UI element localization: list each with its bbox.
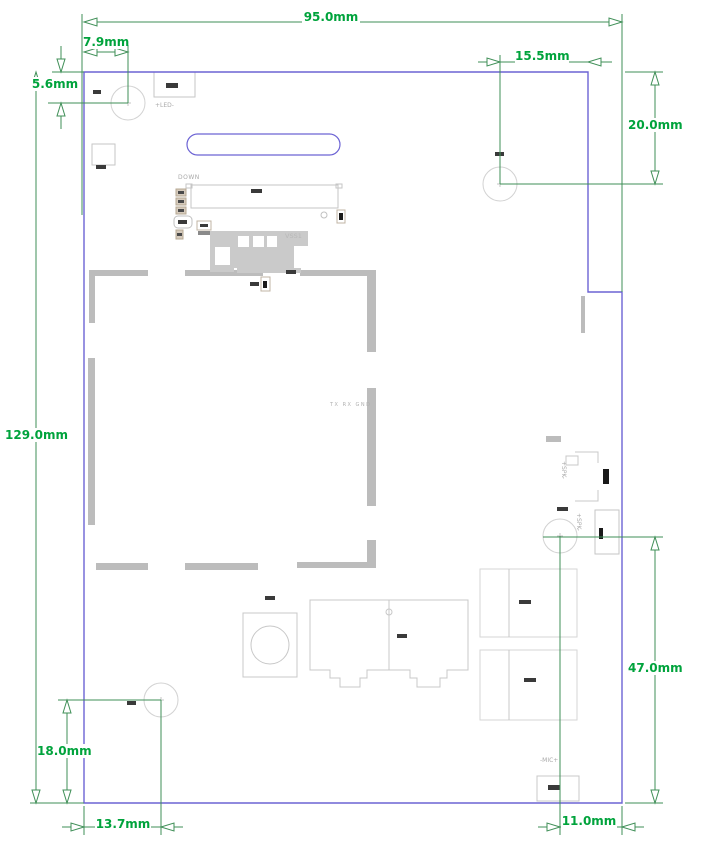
square-component xyxy=(92,144,115,165)
silk-label-uart: TX RX GND xyxy=(330,402,372,409)
dim-label-18mm: 18.0mm xyxy=(37,744,85,758)
test-point xyxy=(321,212,327,218)
silk-label-led: +LED- xyxy=(155,102,174,109)
dim-label-15-5mm: 15.5mm xyxy=(515,49,569,63)
dim-label-11mm: 11.0mm xyxy=(561,814,617,828)
transformer-footprint xyxy=(310,600,468,687)
dim-label-95mm: 95.0mm xyxy=(302,10,360,24)
silk-label-down: DOWN xyxy=(178,174,200,181)
spk-connector-footprint xyxy=(566,452,598,501)
silk-label-spk-pad: +SPK- xyxy=(575,513,582,549)
silk-label-spk-connector: +SPK- xyxy=(560,461,567,493)
board-slot xyxy=(187,134,340,155)
dim-label-47mm: 47.0mm xyxy=(628,661,680,675)
battery-holders xyxy=(480,569,577,720)
speaker-wire-connector xyxy=(595,510,619,554)
buzzer-footprint xyxy=(243,613,297,677)
dimension-annotations xyxy=(30,14,663,835)
dim-label-129mm: 129.0mm xyxy=(5,428,63,442)
dim-label-20mm: 20.0mm xyxy=(628,118,680,132)
silk-label-mic: -MIC+ xyxy=(540,757,558,764)
pcb-dimension-drawing: 95.0mm 7.9mm 5.6mm 15.5mm 20.0mm 129.0mm… xyxy=(0,0,717,842)
silk-label-vss1: VSS1 xyxy=(285,233,302,240)
drawing-canvas xyxy=(0,0,717,842)
dim-label-13-7mm: 13.7mm xyxy=(95,817,151,831)
dim-label-7-9mm: 7.9mm xyxy=(83,35,127,49)
chip-column xyxy=(176,189,186,214)
ffc-connector xyxy=(191,185,338,208)
dim-label-5-6mm: 5.6mm xyxy=(31,77,79,91)
emi-shield-frame xyxy=(88,270,585,570)
